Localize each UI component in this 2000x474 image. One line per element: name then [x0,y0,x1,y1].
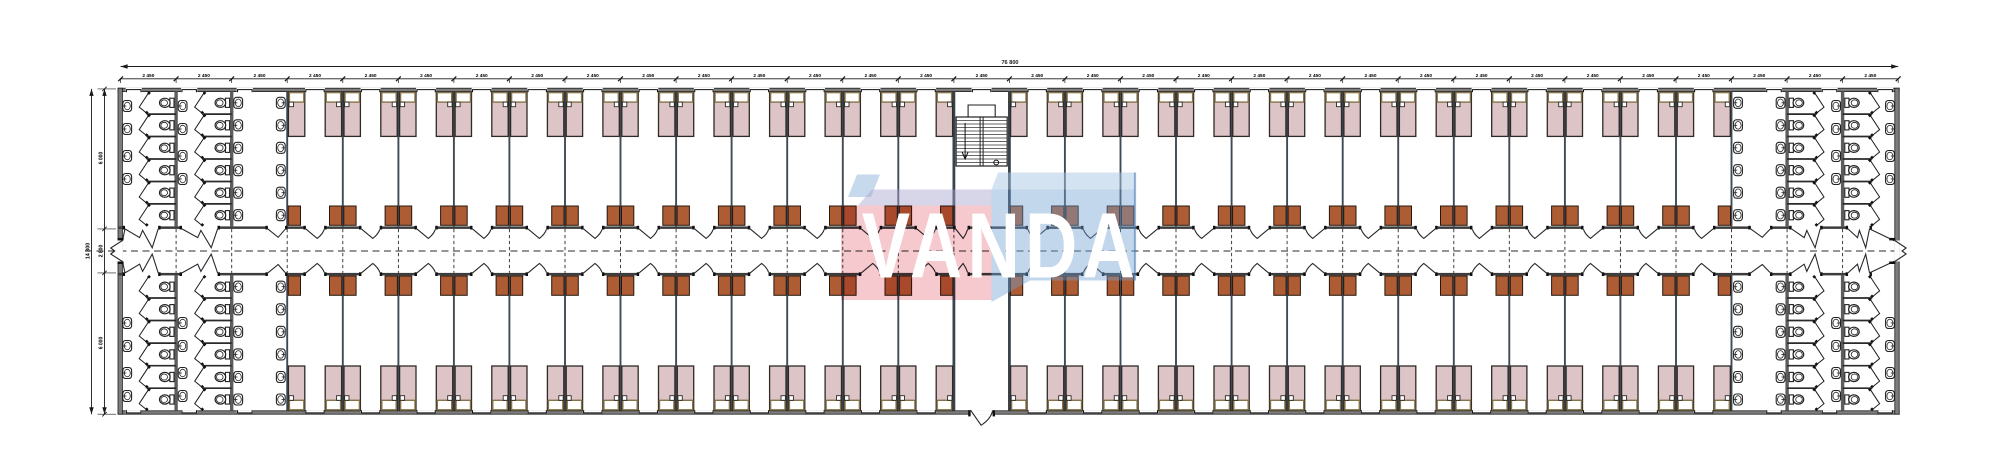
svg-text:76 800: 76 800 [1001,60,1018,66]
svg-text:2 450: 2 450 [809,73,821,79]
svg-text:2 800: 2 800 [99,245,105,258]
svg-text:6 000: 6 000 [99,152,105,165]
svg-text:2 450: 2 450 [309,73,321,79]
svg-text:2 450: 2 450 [1364,73,1376,79]
svg-text:2 450: 2 450 [864,73,876,79]
svg-text:2 450: 2 450 [587,73,599,79]
svg-text:14 800: 14 800 [86,243,92,260]
svg-text:2 450: 2 450 [1198,73,1210,79]
svg-text:2 450: 2 450 [198,73,210,79]
svg-text:2 450: 2 450 [1587,73,1599,79]
svg-text:2 450: 2 450 [1864,73,1876,79]
svg-text:2 450: 2 450 [1698,73,1710,79]
svg-text:2 450: 2 450 [1309,73,1321,79]
svg-text:2 450: 2 450 [253,73,265,79]
svg-text:2 450: 2 450 [1420,73,1432,79]
svg-text:2 450: 2 450 [753,73,765,79]
svg-text:2 450: 2 450 [920,73,932,79]
svg-text:2 450: 2 450 [1531,73,1543,79]
svg-text:2 450: 2 450 [1753,73,1765,79]
svg-text:VANDA: VANDA [862,194,1140,298]
svg-text:2 450: 2 450 [1809,73,1821,79]
svg-text:2 450: 2 450 [642,73,654,79]
svg-text:2 450: 2 450 [976,73,988,79]
svg-text:2 450: 2 450 [1031,73,1043,79]
svg-text:2 450: 2 450 [420,73,432,79]
svg-text:2 450: 2 450 [476,73,488,79]
svg-text:2 450: 2 450 [698,73,710,79]
svg-text:2 450: 2 450 [1142,73,1154,79]
svg-text:2 450: 2 450 [1476,73,1488,79]
svg-text:2 450: 2 450 [142,73,154,79]
svg-text:6 000: 6 000 [99,337,105,350]
svg-text:2 450: 2 450 [365,73,377,79]
svg-text:2 450: 2 450 [1642,73,1654,79]
svg-text:2 450: 2 450 [1087,73,1099,79]
svg-text:2 450: 2 450 [531,73,543,79]
svg-text:2 450: 2 450 [1253,73,1265,79]
